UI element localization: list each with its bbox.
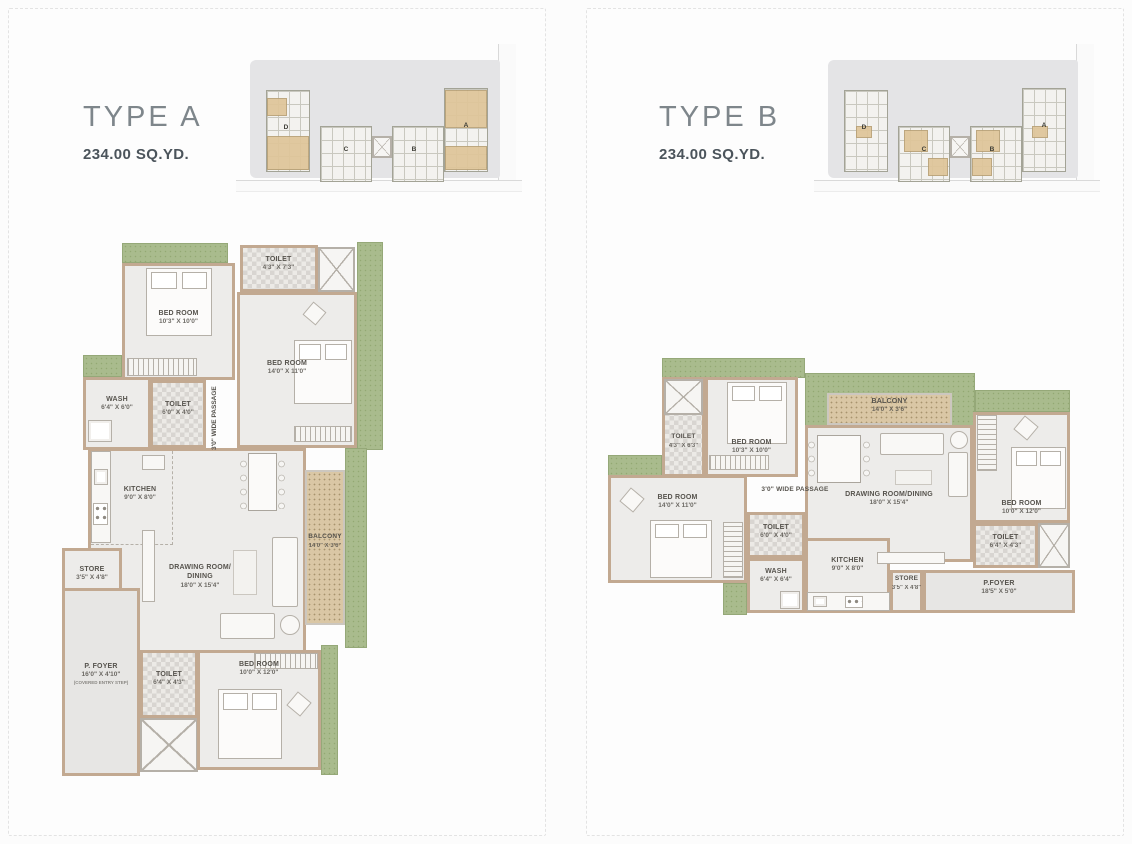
type-a-area: 234.00 SQ.YD. [83,146,189,163]
wash-basin [88,420,112,442]
room-label-store: STORE3'5" X 4'8" [890,575,923,592]
keyplan-type-b: D C B A [800,40,1100,192]
green-landscape [662,358,805,378]
room-label-wash: WASH6'4" X 6'4" [747,567,805,585]
keyplan-highlight [445,146,487,170]
keyplan-highlight [267,98,287,116]
room-label-kitchen: KITCHEN9'0" X 8'0" [100,485,180,503]
sofa [220,613,275,639]
wardrobe [977,415,997,471]
shower-box [1038,523,1070,568]
green-landscape [723,583,747,615]
floorplan-type-b: TOILET4'3" X 6'3" BED ROOM10'3" X 10'0" … [605,353,1085,623]
sofa [880,433,944,455]
room-label-bedroom-3: BED ROOM10'0" X 12'0" [973,499,1070,517]
keyplan-building-b [392,126,444,182]
type-b-title: TYPE B [659,101,780,134]
round-chair [280,615,300,635]
green-landscape [122,243,228,263]
room-label-balcony: BALCONY14'0" X 3'6" [301,533,349,550]
wardrobe [709,455,769,470]
road [498,44,516,192]
keyplan-highlight [928,158,948,176]
road [236,180,522,192]
room-label-balcony: BALCONY14'0" X 3'6" [827,397,952,415]
wash-basin [780,591,800,609]
room-label-drawing: DRAWING ROOM/DINING18'0" X 15'4" [140,563,260,591]
room-label-wash: WASH6'4" X 6'0" [83,395,151,413]
room-label-bedroom-2: BED ROOM14'0" X 11'0" [608,493,747,511]
wardrobe [294,426,352,442]
green-landscape [975,390,1070,412]
room-label-p-foyer: P. FOYER16'0" X 4'10"(COVERED ENTRY STEP… [62,662,140,686]
room-label-passage: 3'0" WIDE PASSAGE [211,385,223,451]
road [814,180,1100,192]
type-b-area: 234.00 SQ.YD. [659,146,765,163]
dining-table [817,435,861,483]
stove [845,596,863,608]
sink [94,469,108,485]
room-label-toilet-bottom: TOILET6'4" X 4'3" [140,670,198,688]
room-label-toilet-top: TOILET4'3" X 7'3" [240,255,317,273]
shower-box [140,718,198,772]
wardrobe [723,522,743,578]
rug [895,470,932,485]
keyplan-highlight [972,158,992,176]
green-landscape [357,242,383,450]
bed [727,382,787,444]
room-label-passage: 3'0" WIDE PASSAGE [740,486,850,495]
shower-box [664,379,703,415]
room-label-store: STORE3'5" X 4'8" [62,565,122,583]
dining-table [248,453,277,511]
room-label-toilet-2: TOILET6'0" X 4'0" [747,523,805,541]
keyplan-type-a: D C B A [222,40,522,192]
keyplan-lift-core [372,136,392,158]
room-label-bedroom-1: BED ROOM10'3" X 10'0" [122,309,235,327]
keyplan-letter-a: A [460,122,472,129]
keyplan-letter-d: D [858,124,870,131]
shower-box [318,247,355,292]
room-label-bedroom-1: BED ROOM10'3" X 10'0" [705,438,798,456]
room-label-bedroom-2: BED ROOM14'0" X 11'0" [237,359,337,377]
type-a-title: TYPE A [83,101,203,134]
floorplan-type-a: TOILET4'3" X 7'3" BED ROOM10'3" X 10'0" … [58,237,388,782]
floorplan-sheet: { "palette":{ "wall":"#c2a991","room":"#… [0,0,1132,844]
wardrobe [127,358,197,376]
keyplan-building-c [320,126,372,182]
room-label-kitchen: KITCHEN9'0" X 8'0" [805,556,890,574]
bed [218,689,282,759]
room-label-toilet-3: TOILET6'4" X 4'3" [973,533,1038,551]
room-label-bedroom-3: BED ROOM10'0" X 12'0" [197,660,321,678]
dining-chairs [807,438,816,482]
sink [813,596,827,607]
stove [93,503,108,525]
round-chair [950,431,968,449]
keyplan-letter-b: B [408,146,420,153]
sofa [272,537,298,607]
road [1076,44,1094,192]
keyplan-letter-c: C [340,146,352,153]
green-landscape [321,645,338,775]
green-landscape [608,455,662,477]
keyplan-letter-b: B [986,146,998,153]
keyplan-letter-d: D [280,124,292,131]
keyplan-letter-a: A [1038,122,1050,129]
green-landscape [83,355,122,377]
keyplan-highlight [267,136,309,170]
dining-chairs [239,457,248,509]
bed [650,520,712,578]
room-label-p-foyer: P.FOYER18'5" X 5'0" [923,579,1075,597]
dining-chairs [862,438,871,482]
fridge [142,455,165,470]
dining-chairs [277,457,286,509]
room-label-toilet-1: TOILET4'3" X 6'3" [662,433,705,450]
keyplan-lift-core [950,136,970,158]
keyplan-letter-c: C [918,146,930,153]
room-label-toilet-mid: TOILET6'0" X 4'0" [150,400,206,418]
